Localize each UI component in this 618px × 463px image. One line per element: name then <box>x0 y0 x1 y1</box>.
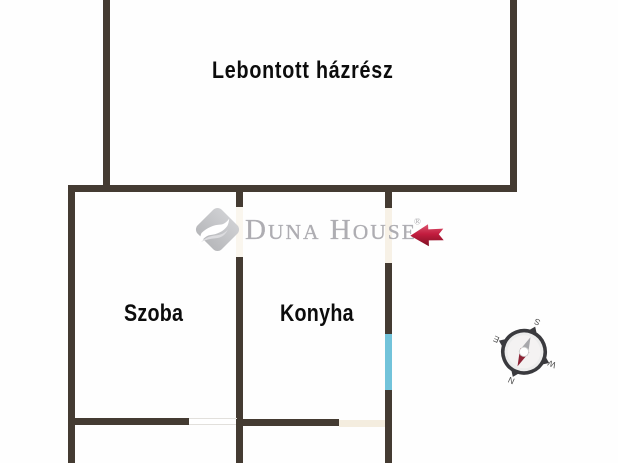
svg-text:W: W <box>546 358 557 370</box>
svg-text:N: N <box>506 375 516 387</box>
svg-text:®: ® <box>414 217 421 227</box>
svg-text:E: E <box>491 334 501 346</box>
svg-text:DUNA HOUSE: DUNA HOUSE <box>245 214 417 246</box>
svg-text:S: S <box>532 316 542 328</box>
